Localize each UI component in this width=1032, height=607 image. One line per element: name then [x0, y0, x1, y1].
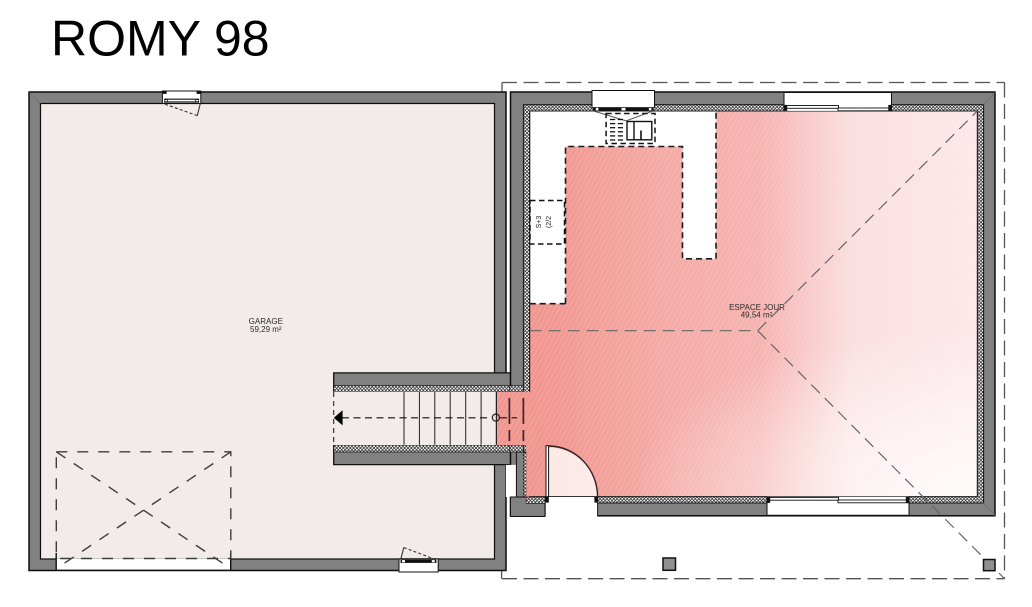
- svg-text:S+3: S+3: [536, 216, 543, 229]
- svg-text:59,29 m²: 59,29 m²: [250, 325, 282, 334]
- svg-text:(2/2: (2/2: [546, 216, 553, 228]
- svg-text:ROMY 98: ROMY 98: [51, 11, 270, 67]
- svg-text:49,54 m²: 49,54 m²: [741, 311, 773, 320]
